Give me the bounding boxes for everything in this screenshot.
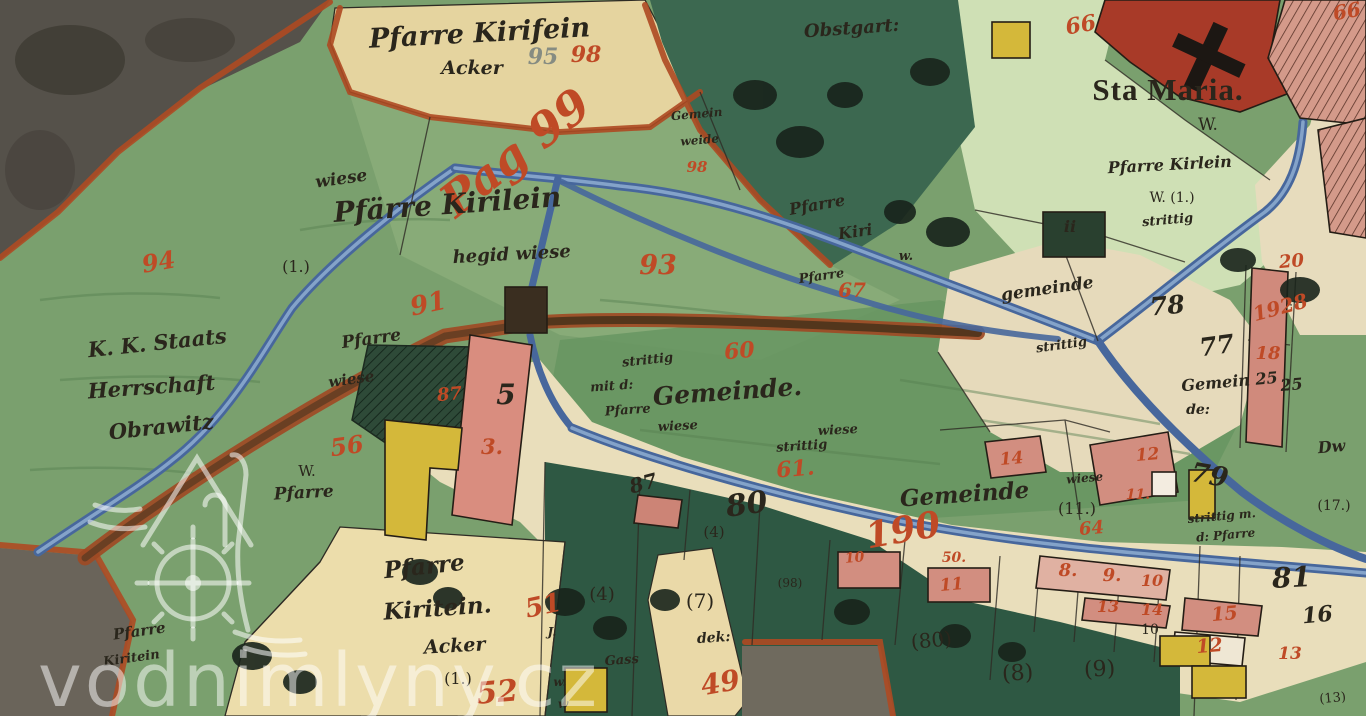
map-label: de:	[1186, 402, 1210, 418]
map-label: 16	[1301, 601, 1334, 630]
map-label: 25	[1279, 374, 1304, 395]
watermark-text: vodnimlyny.cz	[38, 638, 600, 716]
map-label: 11	[939, 574, 964, 596]
map-canvas: Pfarre KirifeinAcker9598Obstgart:Gemeinw…	[0, 0, 1366, 716]
map-label: ii	[1064, 217, 1076, 236]
map-label: W.	[1198, 115, 1218, 135]
map-label: (9)	[1083, 656, 1115, 683]
map-label: 13	[1097, 597, 1119, 616]
map-label: 95	[528, 44, 559, 70]
yellow-house-top	[992, 22, 1030, 58]
map-label: 93	[639, 250, 677, 281]
map-label: 20	[1277, 250, 1305, 273]
map-label: 10	[1141, 622, 1159, 638]
map-label: (4)	[589, 584, 615, 605]
map-label: 66	[1063, 10, 1098, 41]
map-label: 11.	[1126, 487, 1150, 503]
map-label: (4)	[703, 523, 724, 541]
map-label: (98)	[778, 576, 803, 590]
map-label: 12	[1135, 444, 1160, 466]
map-label: Acker	[439, 57, 505, 79]
map-label: 8.	[1058, 560, 1078, 581]
map-label: Sta Maria.	[1092, 72, 1243, 107]
map-label: 56	[328, 429, 365, 462]
map-label: 3.	[481, 434, 503, 459]
map-label: 50.	[942, 550, 966, 566]
map-label: 9.	[1103, 565, 1122, 586]
map-label: 18	[1255, 343, 1281, 364]
map-label: W.	[298, 462, 316, 480]
map-label: 10	[844, 549, 865, 567]
map-label: 10	[1141, 571, 1163, 590]
bridge-sluice	[505, 287, 547, 333]
map-label: 81	[1270, 560, 1312, 595]
map-label: 13	[1278, 644, 1302, 664]
map-label: 60	[723, 337, 756, 366]
map-label: 5	[496, 378, 515, 411]
yellow-house-bottom-2	[1192, 666, 1246, 698]
map-label: 12	[1195, 634, 1223, 658]
map-label: Pfarre	[272, 481, 334, 504]
map-label: J.	[546, 625, 557, 639]
map-label: 98	[571, 42, 602, 68]
map-label: 64	[1078, 517, 1105, 540]
pink-house-small-centre	[634, 495, 682, 528]
map-label: (1.)	[282, 257, 310, 276]
map-label: W. (1.)	[1149, 190, 1194, 206]
map-label: (80)	[910, 626, 953, 653]
map-label: (17.)	[1317, 498, 1350, 514]
map-label: Dw	[1316, 436, 1347, 458]
map-label: 77	[1198, 329, 1237, 363]
map-label: 98	[687, 158, 708, 176]
map-label: 61.	[775, 454, 815, 483]
map-label: dek:	[696, 629, 731, 647]
map-label: (8)	[1001, 660, 1033, 687]
map-label: (7)	[686, 589, 714, 613]
map-label: 14	[1141, 600, 1163, 619]
map-label: 67	[838, 278, 866, 302]
map-label: 79	[1188, 457, 1231, 494]
map-label: 15	[1210, 602, 1238, 626]
map-label: wiese	[657, 418, 698, 435]
map-label: (13)	[1319, 690, 1347, 707]
map-label: Gass	[604, 652, 640, 669]
map-label: 94	[140, 244, 178, 278]
map-label: 80	[723, 484, 770, 525]
map-label: 78	[1149, 290, 1186, 322]
map-label: (11.)	[1058, 499, 1096, 518]
gray-bottom-centre	[742, 646, 895, 716]
map-label: 14	[999, 448, 1024, 470]
checker-mark	[1152, 472, 1176, 496]
map-label: 49	[698, 663, 742, 702]
map-label: w.	[899, 249, 913, 264]
map-label: mit d:	[590, 378, 634, 396]
map-label: 87	[435, 383, 463, 406]
